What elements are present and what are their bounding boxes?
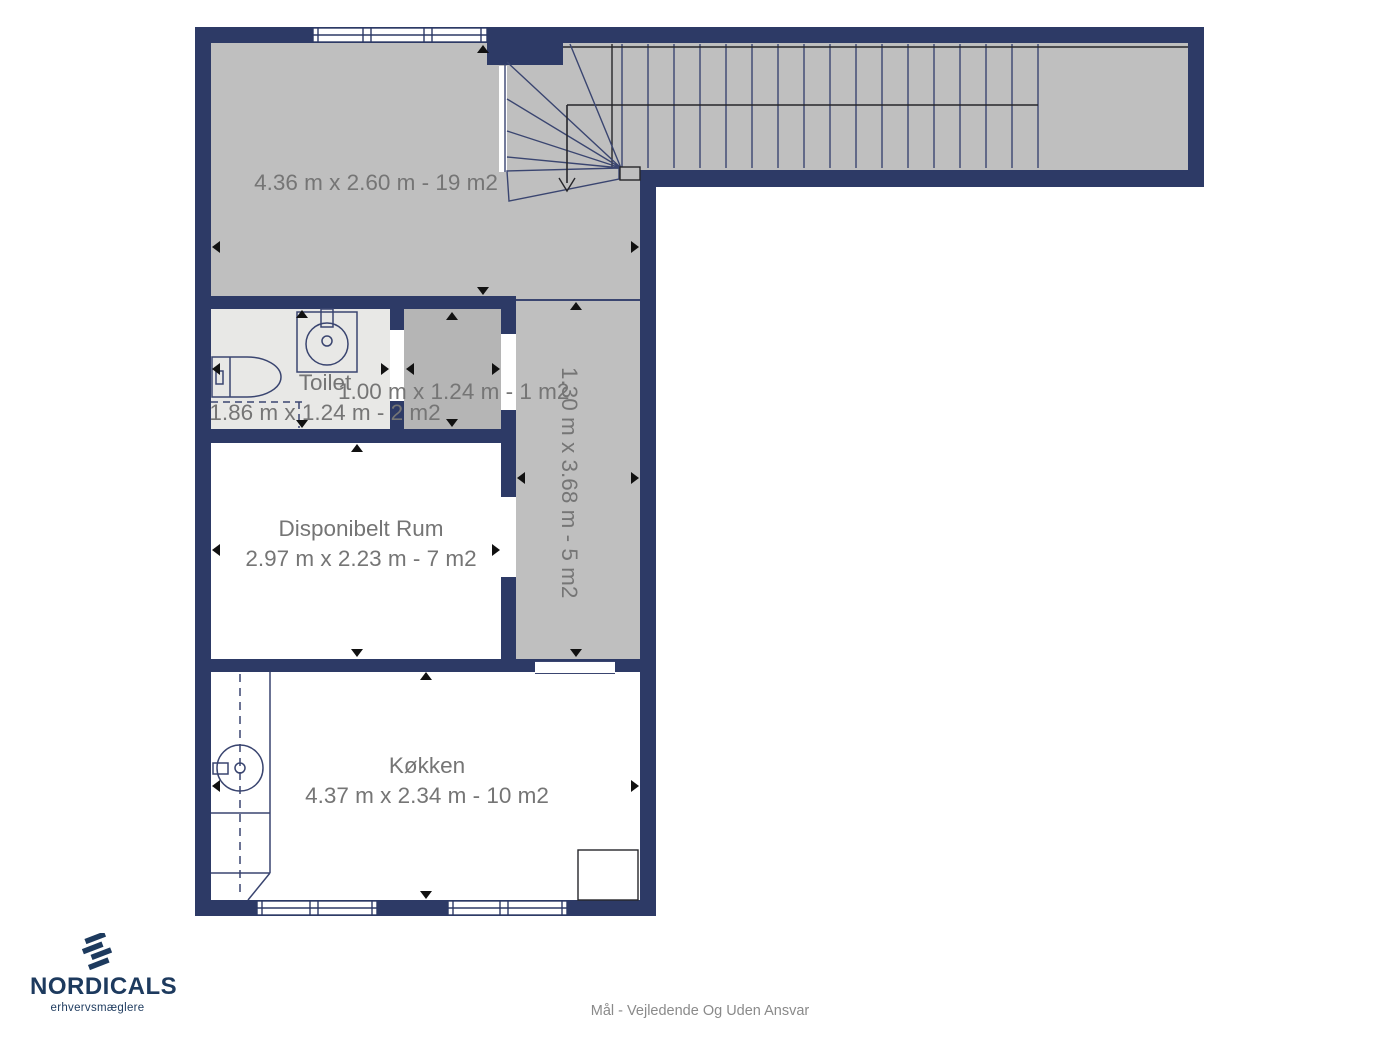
- room-name: Køkken: [247, 751, 607, 781]
- room-dims: 1.30 m x 3.68 m - 5 m2: [557, 367, 582, 598]
- room-label-small: 1.00 m x 1.24 m - 1 m2: [338, 377, 568, 407]
- stair-stringer-gap: [499, 66, 507, 172]
- floorplan-page: 4.36 m x 2.60 m - 19 m2 Toilet 1.86 m x …: [0, 0, 1400, 1050]
- room-boundary-line: [516, 299, 640, 301]
- wall-mid-horizontal: [195, 296, 516, 309]
- wall-outer-bottom: [195, 900, 656, 916]
- wall-right-column: [640, 170, 656, 916]
- wall-outer-top: [195, 27, 1204, 43]
- room-dims: 4.37 m x 2.34 m - 10 m2: [247, 781, 607, 811]
- wall-stair-notch: [487, 43, 563, 65]
- wall-staircase-bottom: [656, 170, 1188, 187]
- room-dims: 4.36 m x 2.60 m - 19 m2: [211, 168, 541, 198]
- room-label-disponibelt: Disponibelt Rum 2.97 m x 2.23 m - 7 m2: [211, 514, 511, 574]
- room-dims: 2.97 m x 2.23 m - 7 m2: [211, 544, 511, 574]
- logo-text: NORDICALS: [30, 973, 165, 1001]
- room-dims: 1.00 m x 1.24 m - 1 m2: [338, 377, 568, 407]
- floor-staircase-corridor: [562, 43, 1188, 170]
- room-label-kitchen: Køkken 4.37 m x 2.34 m - 10 m2: [247, 751, 607, 811]
- disclaimer-text: Mål - Vejledende Og Uden Ansvar: [0, 1003, 1400, 1019]
- door-opening-hallway-kitchen: [535, 661, 615, 674]
- wall-lower-horizontal: [195, 429, 516, 443]
- nordicals-logo-icon: [80, 933, 116, 971]
- room-name: Disponibelt Rum: [211, 514, 511, 544]
- room-label-hallway: 1.30 m x 3.68 m - 5 m2: [556, 362, 582, 604]
- nordicals-logo: NORDICALS erhvervsmæglere: [30, 933, 165, 1014]
- wall-outer-left: [195, 27, 211, 916]
- room-label-main: 4.36 m x 2.60 m - 19 m2: [211, 168, 541, 198]
- wall-outer-right-top: [1188, 27, 1204, 187]
